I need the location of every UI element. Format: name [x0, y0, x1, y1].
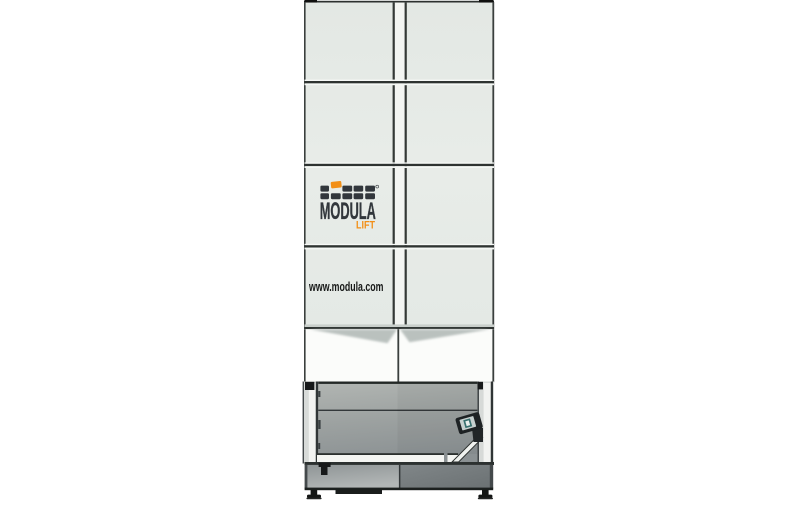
svg-text:LIFT: LIFT [356, 220, 375, 232]
svg-text:www.modula.com: www.modula.com [308, 280, 383, 294]
